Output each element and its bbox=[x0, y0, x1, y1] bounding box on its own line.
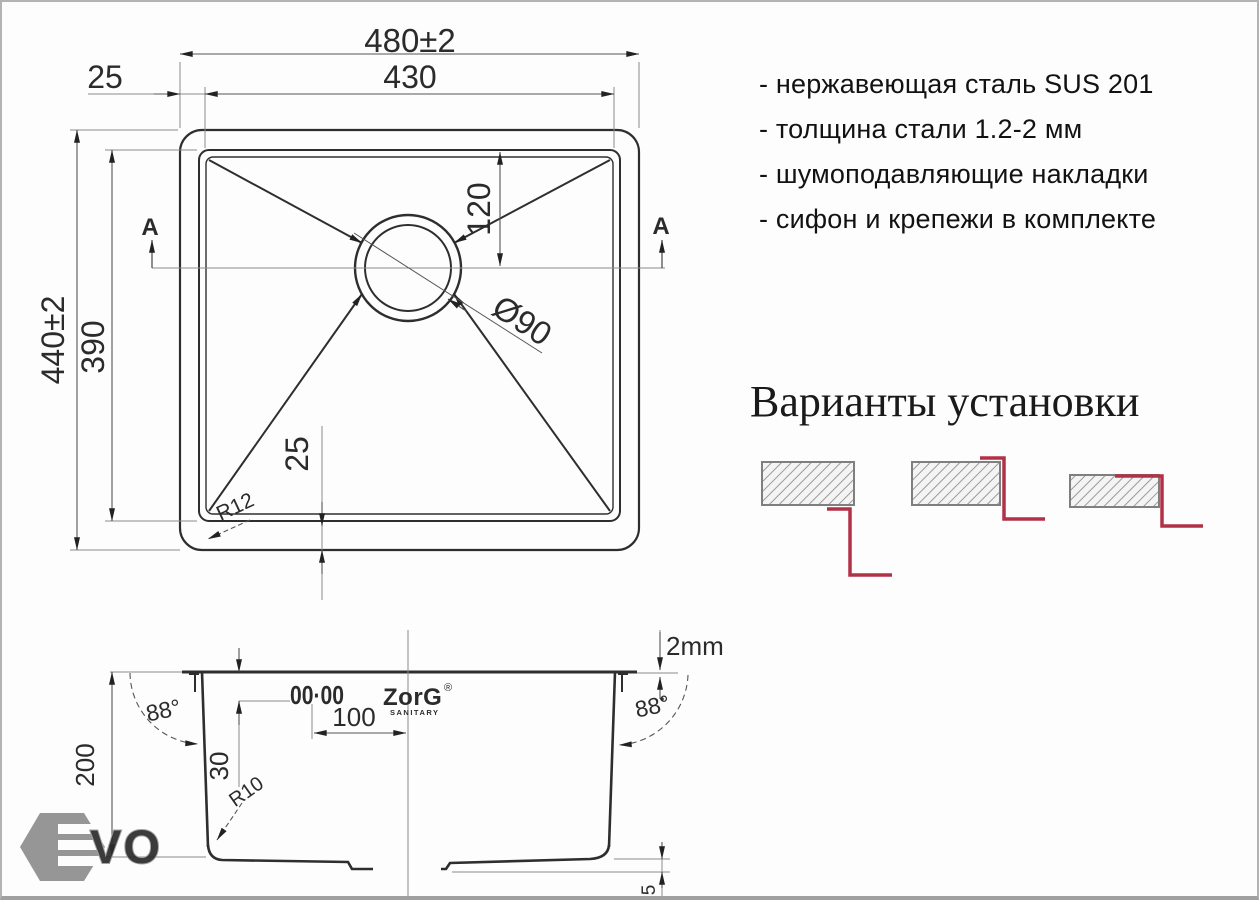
section-marker-right: A bbox=[652, 213, 669, 240]
dim-rim-height: 2mm bbox=[666, 631, 724, 661]
installation-diagrams bbox=[742, 442, 1259, 592]
feature-item-soundproofing: - шумоподавляющие накладки bbox=[759, 152, 1219, 197]
countertop-section-1 bbox=[762, 462, 854, 505]
dim-rim-top: 25 bbox=[87, 59, 123, 95]
zorg-logo-text: ZorG bbox=[383, 684, 442, 711]
faucet-knockout-holes: 00·00 bbox=[290, 680, 344, 710]
dim-outer-width: 480±2 bbox=[364, 22, 456, 59]
bowl-rim-outer-line bbox=[199, 150, 620, 521]
bowl-floor-right bbox=[441, 845, 609, 869]
bowl-floor-left bbox=[208, 845, 373, 869]
zorg-logo-reg: ® bbox=[444, 682, 452, 694]
bottom-slope-creases bbox=[209, 160, 610, 511]
features-list: - нержавеющая сталь SUS 201 - толщина ст… bbox=[759, 62, 1219, 242]
sink-technical-drawing: A A bbox=[2, 2, 747, 900]
bowl-rim-inner-line bbox=[206, 157, 613, 514]
install-option-undermount bbox=[762, 462, 892, 575]
countertop-section-2 bbox=[912, 462, 1000, 505]
sink-profile-1 bbox=[827, 509, 892, 575]
dim-drain-step: 5 bbox=[639, 885, 660, 896]
dim-outer-height: 440±2 bbox=[35, 296, 71, 385]
left-mount-clip bbox=[189, 674, 199, 692]
dim-bowl-height: 390 bbox=[75, 320, 111, 373]
right-bowl-wall bbox=[609, 672, 615, 847]
zorg-logo: ZorG ® SANITARY bbox=[383, 682, 452, 717]
dim-bowl-width: 430 bbox=[383, 59, 436, 95]
feature-item-thickness: - толщина стали 1.2-2 мм bbox=[759, 107, 1219, 152]
dim-hole-offset: 30 bbox=[204, 752, 234, 781]
dim-drain-offset: 120 bbox=[461, 182, 497, 235]
dim-drain-diameter: Ø90 bbox=[486, 288, 558, 353]
evo-watermark: VO bbox=[2, 792, 222, 900]
section-marker-left: A bbox=[141, 214, 158, 241]
top-view-extension-lines bbox=[70, 62, 639, 600]
right-mount-clip bbox=[618, 674, 628, 692]
dim-bowl-depth: 200 bbox=[70, 743, 100, 786]
section-line-AA: A A bbox=[141, 213, 669, 268]
installation-options-title: Варианты установки bbox=[750, 376, 1220, 427]
sink-outer-edge bbox=[180, 130, 639, 550]
feature-item-material: - нержавеющая сталь SUS 201 bbox=[759, 62, 1219, 107]
top-view-drawing: A A bbox=[35, 22, 670, 600]
feature-item-included: - сифон и крепежи в комплекте bbox=[759, 197, 1219, 242]
zorg-logo-subtext: SANITARY bbox=[390, 708, 440, 717]
install-option-overmount bbox=[912, 458, 1045, 519]
sink-datasheet-page: A A bbox=[0, 0, 1259, 900]
dim-rim-bottom: 25 bbox=[279, 436, 315, 472]
install-option-flush bbox=[1070, 475, 1203, 526]
dim-wall-angle-right: 88° bbox=[633, 690, 672, 723]
top-view-dimension-lines bbox=[77, 54, 639, 574]
evo-watermark-text: VO bbox=[90, 820, 162, 873]
dim-wall-angle-left: 88° bbox=[144, 694, 183, 727]
countertop-section-3 bbox=[1070, 475, 1159, 507]
